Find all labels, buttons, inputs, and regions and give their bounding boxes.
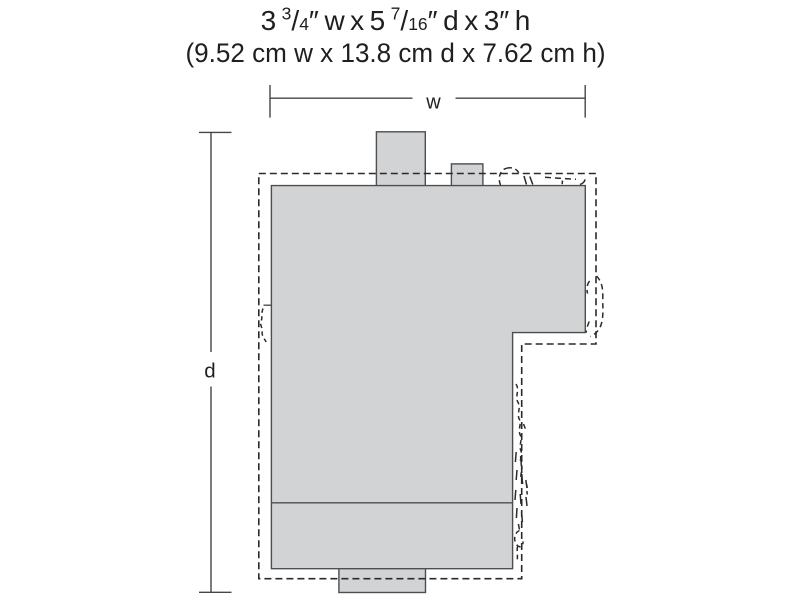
svg-text:(9.52 cm w x 13.8 cm d x 7.62: (9.52 cm w x 13.8 cm d x 7.62 cm h): [186, 38, 606, 68]
svg-text:3 3/4″ w x 5 7/16″ d x 3″ h: 3 3/4″ w x 5 7/16″ d x 3″ h: [261, 4, 531, 37]
svg-text:w: w: [425, 92, 441, 114]
svg-text:d: d: [204, 360, 215, 383]
